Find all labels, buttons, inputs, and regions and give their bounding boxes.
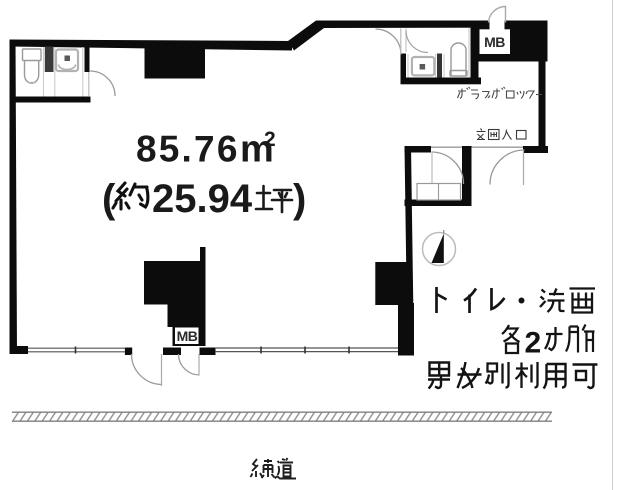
svg-text:MB: MB <box>177 328 198 344</box>
svg-text:MB: MB <box>484 34 505 50</box>
svg-text:2: 2 <box>525 327 542 360</box>
svg-text:): ) <box>293 177 306 221</box>
svg-text:25.94: 25.94 <box>152 177 253 221</box>
svg-text:(: ( <box>102 177 116 221</box>
svg-text:2: 2 <box>264 128 276 151</box>
svg-text:85.76: 85.76 <box>136 129 240 170</box>
